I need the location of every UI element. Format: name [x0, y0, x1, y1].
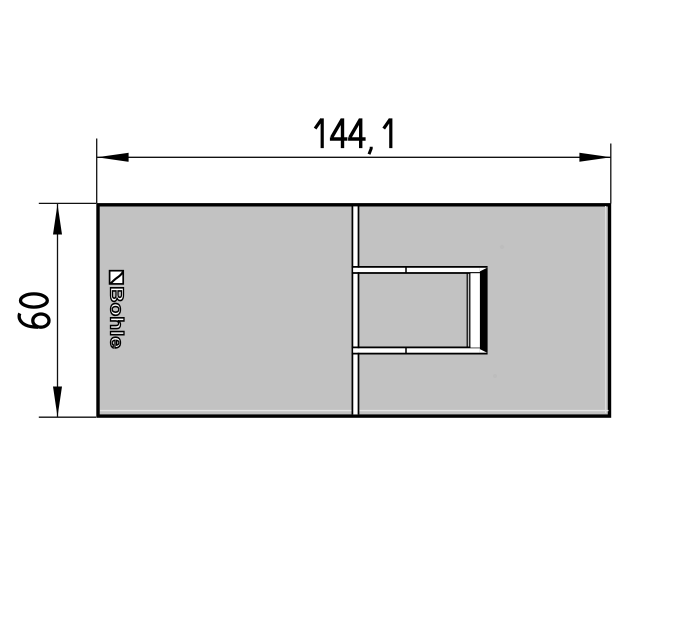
- svg-text:Bohle: Bohle: [106, 286, 126, 349]
